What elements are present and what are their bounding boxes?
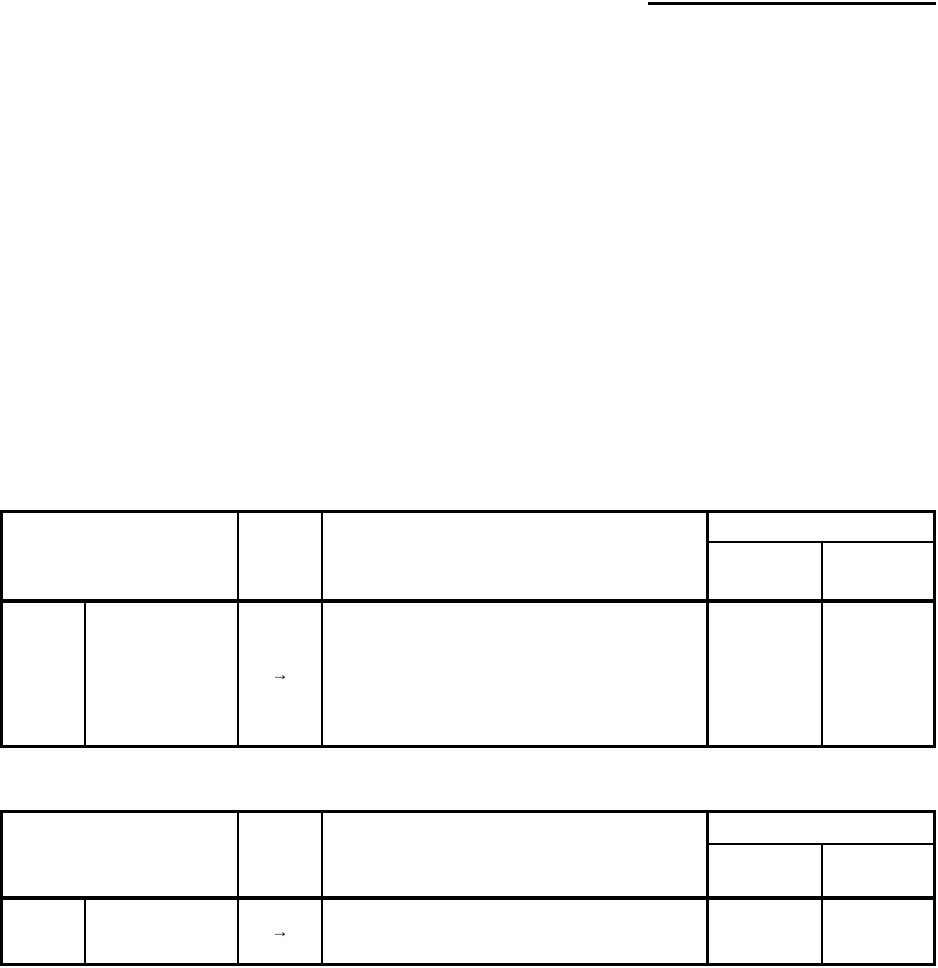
table-2-col-divider-2	[321, 813, 323, 963]
table-1-body-col-divider	[84, 603, 86, 745]
table-1-header-bottom-divider	[3, 599, 933, 603]
table-1-col-divider-3	[706, 513, 709, 745]
top-right-horizontal-rule	[648, 2, 936, 5]
table-1-col-divider-2	[321, 513, 323, 745]
right-arrow-icon: →	[272, 666, 289, 683]
table-2-arrow-cell: →	[239, 900, 321, 963]
table-2-col-divider-3	[706, 813, 709, 963]
table-2: →	[0, 810, 936, 966]
right-arrow-icon: →	[272, 923, 289, 940]
table-1: →	[0, 510, 936, 748]
table-2-body-col-divider	[84, 900, 86, 963]
table-2-header-bottom-divider	[3, 896, 933, 900]
table-1-arrow-cell: →	[239, 603, 321, 745]
document-page: → →	[0, 0, 938, 968]
table-2-subcol-divider	[821, 843, 823, 963]
table-1-subcol-divider	[821, 541, 823, 745]
